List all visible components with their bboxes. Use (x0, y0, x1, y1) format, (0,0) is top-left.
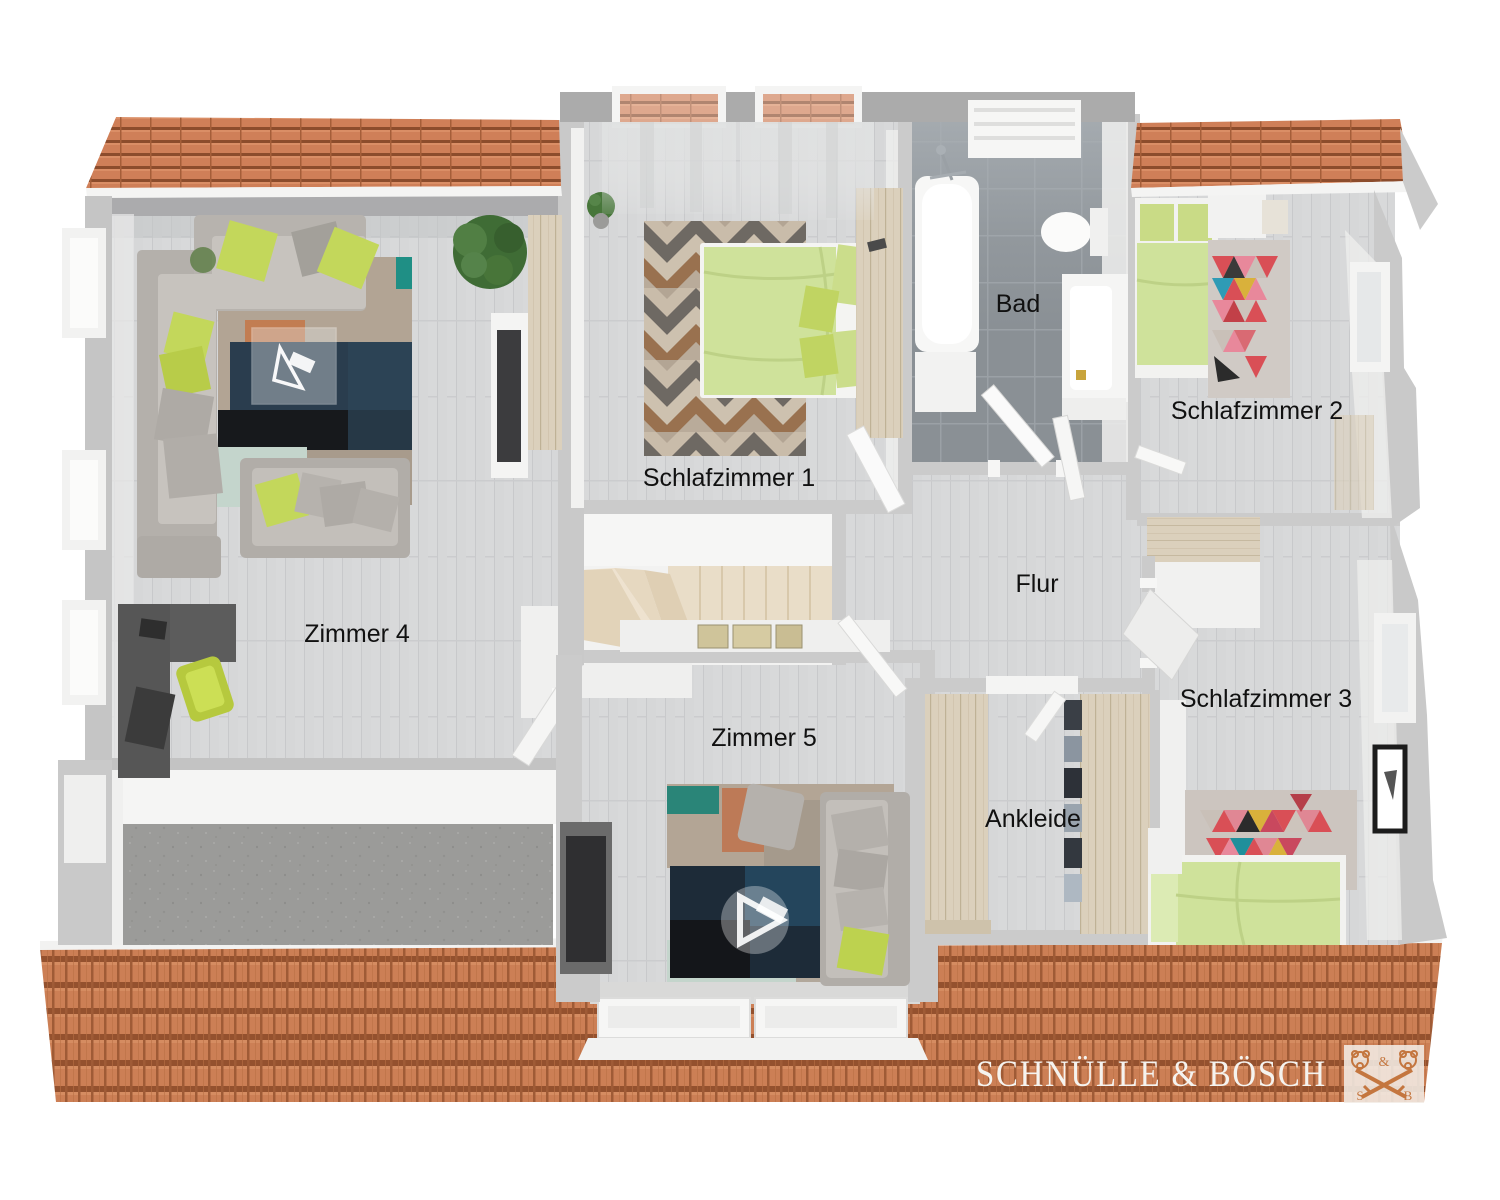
svg-text:Ankleide: Ankleide (985, 805, 1081, 833)
svg-text:S: S (1356, 1088, 1363, 1103)
svg-text:B: B (1404, 1088, 1413, 1103)
svg-text:Schlafzimmer 2: Schlafzimmer 2 (1171, 397, 1343, 425)
svg-text:&: & (1379, 1055, 1390, 1070)
svg-text:Zimmer 4: Zimmer 4 (304, 620, 410, 648)
svg-text:Flur: Flur (1015, 570, 1058, 598)
svg-text:SCHNÜLLE & BÖSCH: SCHNÜLLE & BÖSCH (976, 1054, 1327, 1095)
svg-text:Schlafzimmer 1: Schlafzimmer 1 (643, 464, 815, 492)
svg-text:Schlafzimmer 3: Schlafzimmer 3 (1180, 685, 1352, 713)
svg-text:Bad: Bad (996, 290, 1040, 318)
svg-text:Zimmer 5: Zimmer 5 (711, 724, 817, 752)
